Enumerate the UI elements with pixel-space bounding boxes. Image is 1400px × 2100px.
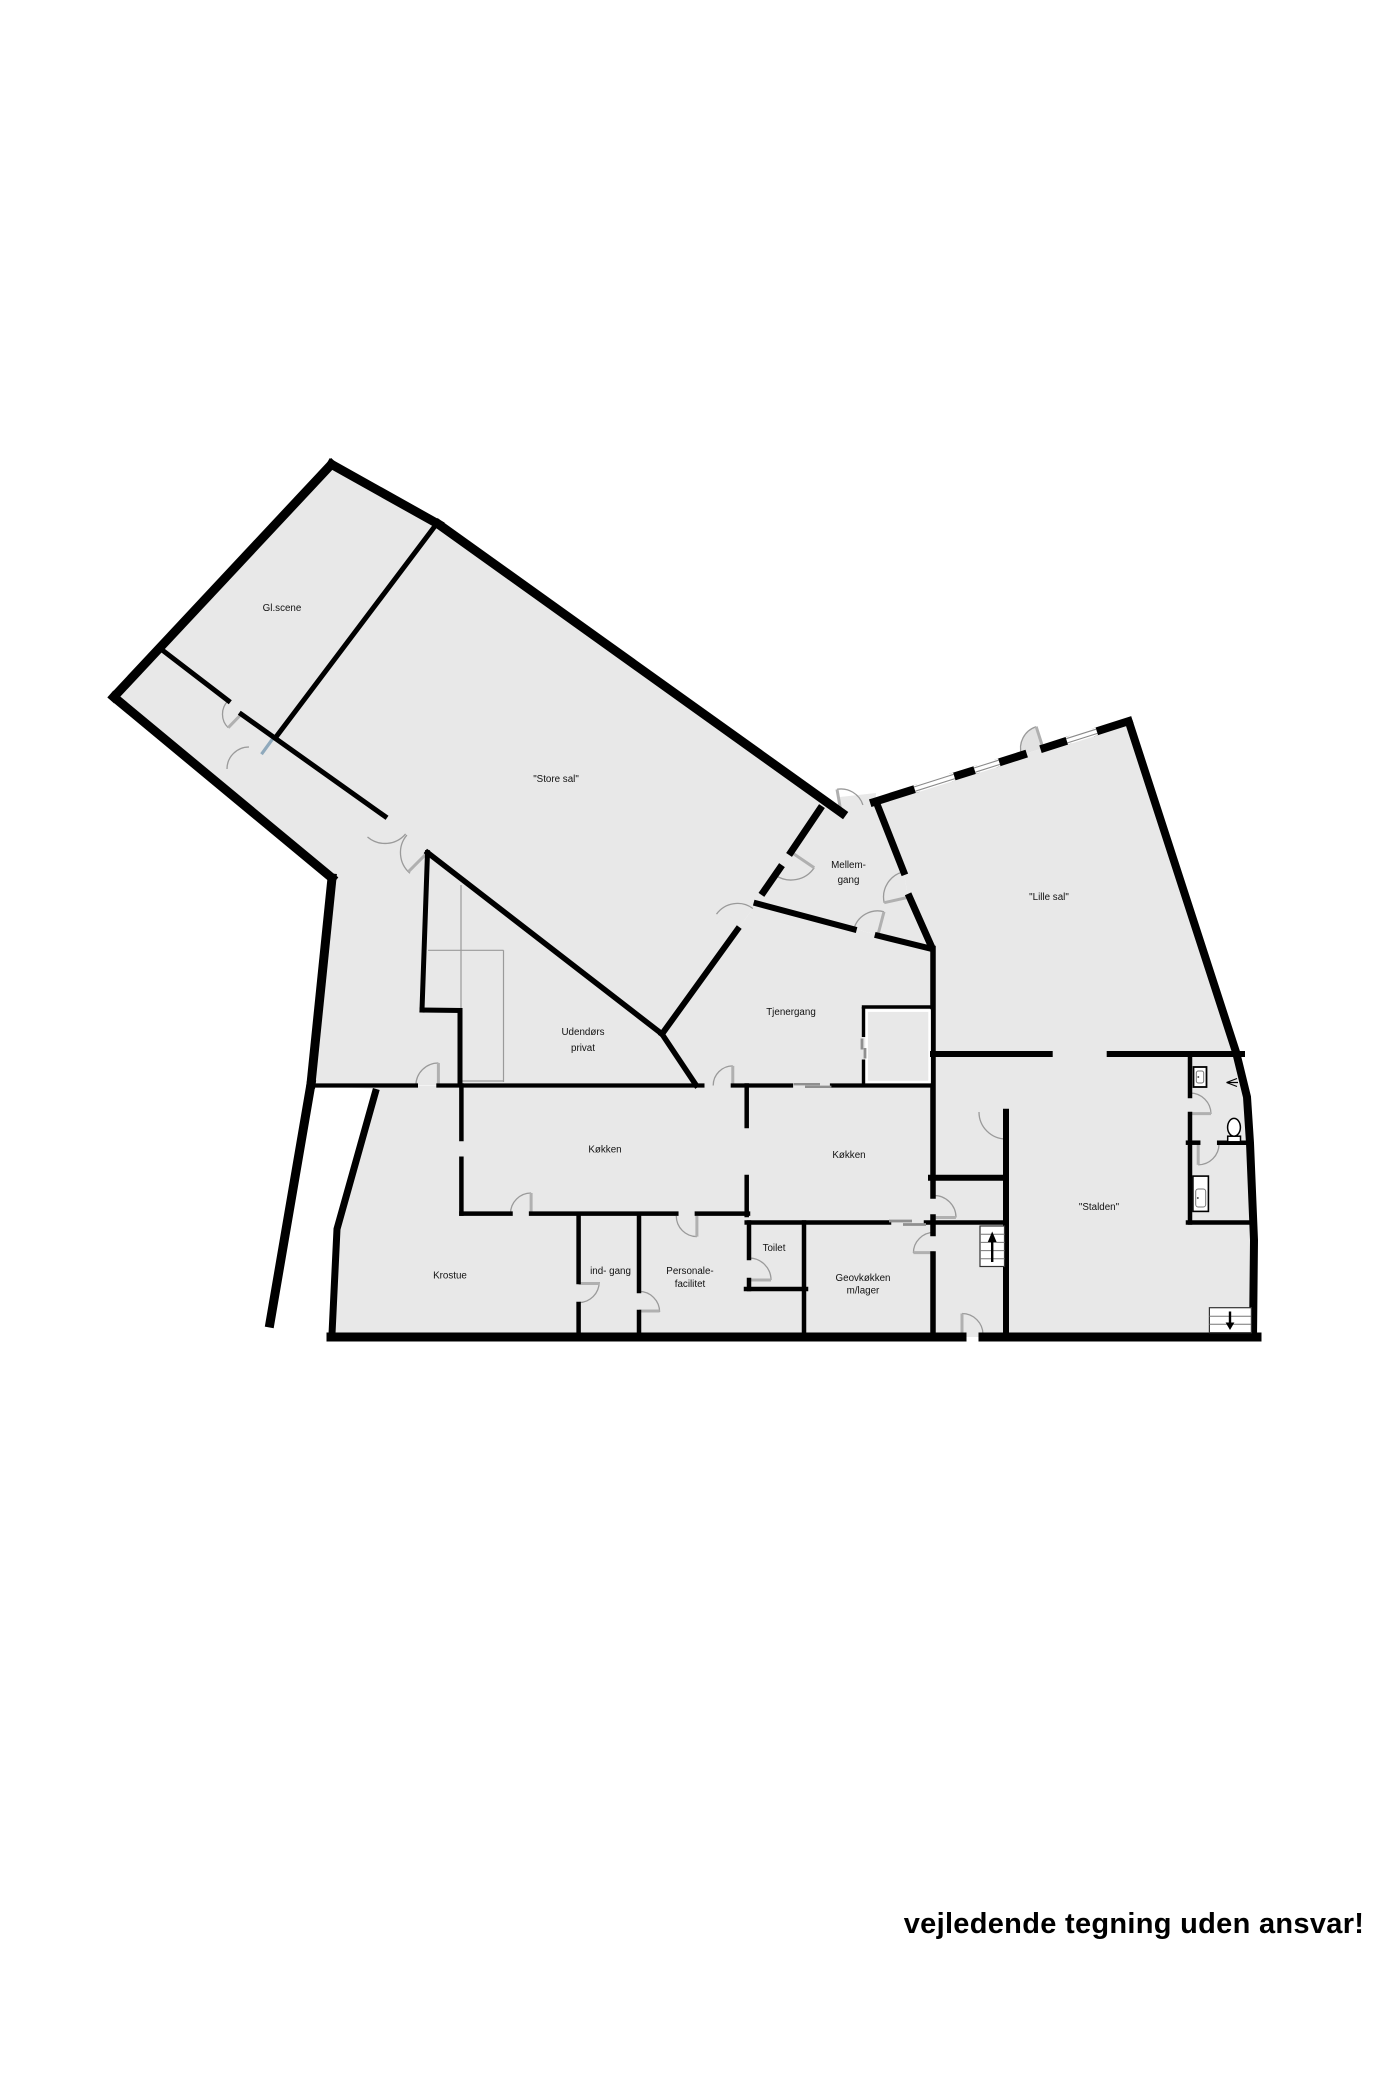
svg-text:Mellem-: Mellem-	[831, 860, 866, 871]
svg-text:Udendørs: Udendørs	[561, 1027, 604, 1038]
svg-text:m/lager: m/lager	[847, 1286, 880, 1297]
svg-text:gang: gang	[838, 875, 860, 886]
svg-text:privat: privat	[571, 1043, 595, 1054]
svg-text:Toilet: Toilet	[763, 1243, 786, 1254]
svg-text:"Lille sal": "Lille sal"	[1029, 892, 1069, 903]
svg-text:Krostue: Krostue	[433, 1271, 467, 1282]
svg-text:"Store sal": "Store sal"	[533, 774, 579, 785]
svg-text:Køkken: Køkken	[588, 1145, 621, 1156]
svg-text:Geovkøkken: Geovkøkken	[836, 1273, 891, 1284]
svg-text:ind- gang: ind- gang	[590, 1266, 631, 1277]
svg-text:Gl.scene: Gl.scene	[263, 603, 302, 614]
svg-text:Personale-: Personale-	[666, 1266, 713, 1277]
svg-text:Tjenergang: Tjenergang	[766, 1007, 816, 1018]
svg-text:"Stalden": "Stalden"	[1079, 1202, 1120, 1213]
svg-text:vejledende tegning uden ansvar: vejledende tegning uden ansvar!	[904, 1908, 1365, 1940]
svg-text:Køkken: Køkken	[832, 1150, 865, 1161]
svg-text:facilitet: facilitet	[675, 1279, 706, 1290]
